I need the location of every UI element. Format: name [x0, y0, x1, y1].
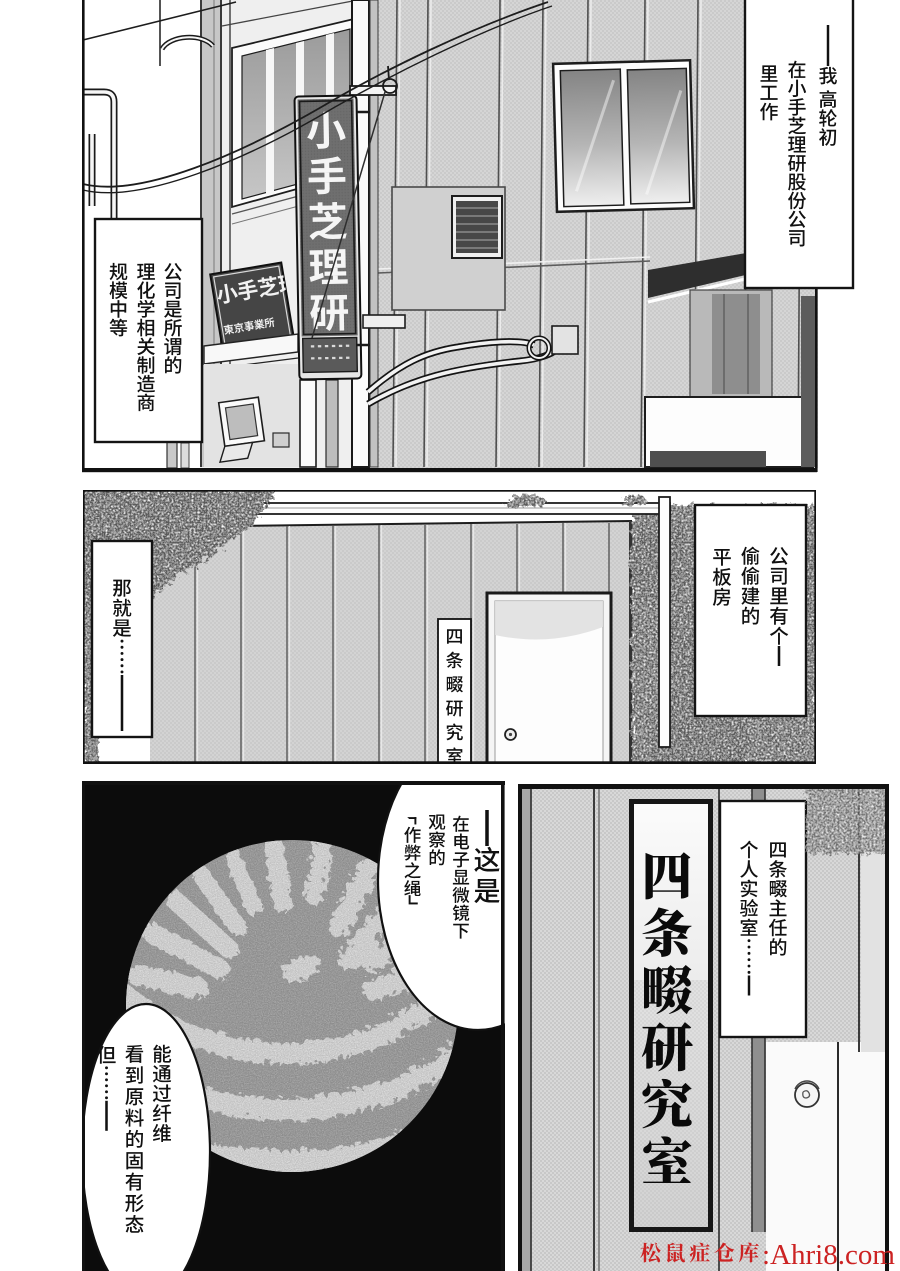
svg-text::Ahri8.com: :Ahri8.com — [762, 1239, 895, 1271]
